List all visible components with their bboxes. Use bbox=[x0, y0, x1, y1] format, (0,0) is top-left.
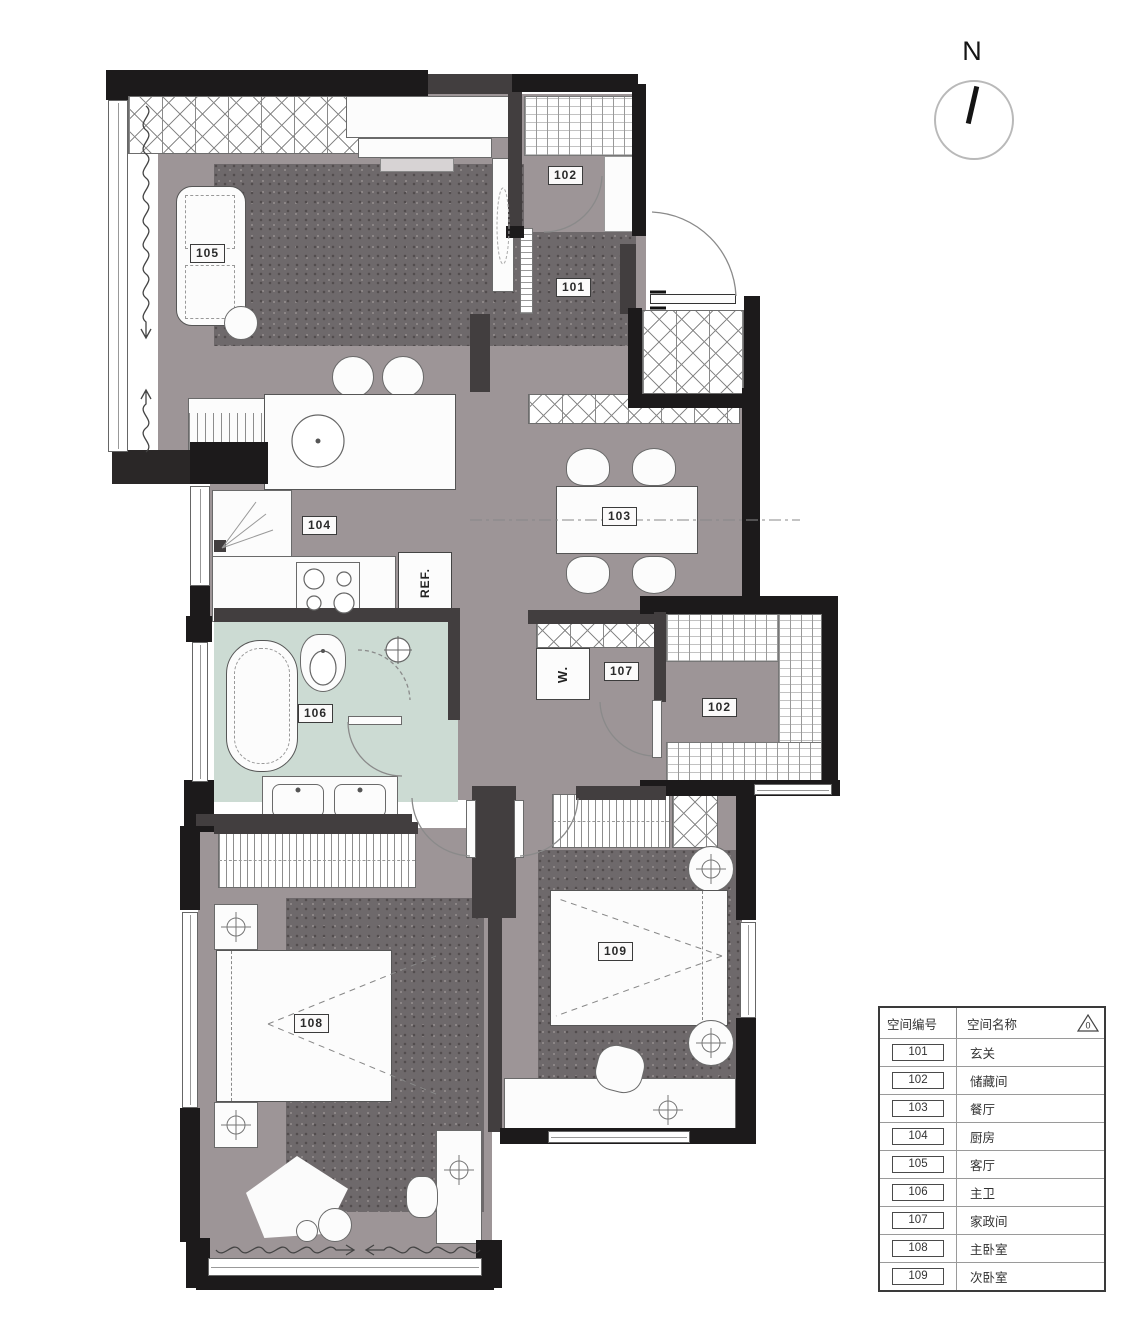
room-tag-closet-top: 102 bbox=[548, 166, 583, 185]
wall bbox=[508, 92, 522, 234]
wall bbox=[736, 1018, 756, 1144]
legend-col-code: 空间编号 bbox=[880, 1014, 956, 1033]
nightstand bbox=[688, 1020, 734, 1066]
second-bed bbox=[550, 890, 728, 1026]
wall bbox=[180, 1108, 200, 1242]
legend-header: 空间编号 空间名称 0 bbox=[880, 1008, 1104, 1038]
room-tag-second: 109 bbox=[598, 942, 633, 961]
legend-room-code: 109 bbox=[892, 1268, 944, 1285]
wall bbox=[186, 616, 212, 642]
svg-text:0: 0 bbox=[1085, 1021, 1090, 1031]
room-tag-utility: 107 bbox=[604, 662, 639, 681]
room-tag-bath: 106 bbox=[298, 704, 333, 723]
legend-row: 108 主卧室 bbox=[880, 1234, 1104, 1262]
wall bbox=[488, 918, 502, 1132]
wall bbox=[506, 226, 524, 238]
refrigerator-label: REF. bbox=[418, 568, 432, 598]
dining-chair bbox=[566, 448, 610, 486]
wall bbox=[196, 1276, 494, 1290]
plant bbox=[296, 1220, 318, 1242]
legend-row: 104 厨房 bbox=[880, 1122, 1104, 1150]
shoe-cabinet bbox=[520, 228, 533, 314]
master-window-bottom bbox=[208, 1258, 482, 1276]
kitchen-island bbox=[264, 394, 456, 490]
room-tag-master: 108 bbox=[294, 1014, 329, 1033]
wall bbox=[472, 786, 516, 918]
bedroom-door-leaf bbox=[514, 800, 524, 858]
toilet bbox=[300, 634, 346, 692]
tv-console-shelf bbox=[358, 138, 492, 158]
living-curtain bbox=[141, 390, 151, 452]
dining-chair bbox=[566, 556, 610, 594]
wall bbox=[628, 308, 642, 406]
room-tag-kitchen: 104 bbox=[302, 516, 337, 535]
nightstand bbox=[214, 1102, 258, 1148]
tv-console bbox=[346, 96, 510, 138]
master-wardrobe bbox=[218, 832, 416, 888]
legend-row: 106 主卫 bbox=[880, 1178, 1104, 1206]
nightstand bbox=[688, 846, 734, 892]
pouf bbox=[224, 306, 258, 340]
legend-room-name: 储藏间 bbox=[970, 1071, 1008, 1090]
pouf bbox=[332, 356, 374, 398]
wall bbox=[736, 788, 756, 920]
storage-door-leaf bbox=[652, 700, 662, 758]
legend-room-name: 厨房 bbox=[970, 1127, 995, 1146]
wall bbox=[180, 826, 200, 910]
storage-window bbox=[754, 784, 832, 795]
room-tag-storage: 102 bbox=[702, 698, 737, 717]
utility-cabinet bbox=[536, 620, 662, 648]
revision-triangle-icon: 0 bbox=[1077, 1013, 1099, 1033]
storage-shelf-bottom bbox=[666, 742, 822, 782]
tv-console-base bbox=[380, 158, 454, 172]
entry-closet-side bbox=[604, 156, 634, 232]
bedroom-door-leaf bbox=[466, 800, 476, 858]
legend-room-code: 104 bbox=[892, 1128, 944, 1145]
room-tag-entry: 101 bbox=[556, 278, 591, 297]
side-table bbox=[318, 1208, 352, 1242]
wall bbox=[196, 814, 412, 826]
vanity-sink bbox=[334, 784, 386, 818]
legend-room-code: 106 bbox=[892, 1184, 944, 1201]
legend-room-code: 105 bbox=[892, 1156, 944, 1173]
north-compass: N bbox=[928, 36, 1016, 166]
legend-room-name: 主卫 bbox=[970, 1183, 995, 1202]
wall bbox=[112, 450, 192, 484]
wall bbox=[620, 244, 636, 314]
entry-door-leaf bbox=[650, 294, 736, 304]
room-tag-dining: 103 bbox=[602, 507, 637, 526]
elevator-shaft bbox=[642, 310, 744, 394]
legend-room-name: 客厅 bbox=[970, 1155, 995, 1174]
second-wardrobe bbox=[552, 794, 670, 848]
legend-room-name: 家政间 bbox=[970, 1211, 1008, 1230]
entry-closet-shelves bbox=[524, 96, 634, 156]
dining-chair bbox=[632, 448, 676, 486]
legend-row: 105 客厅 bbox=[880, 1150, 1104, 1178]
wall bbox=[214, 608, 460, 622]
bathroom-window bbox=[192, 642, 208, 782]
legend-row: 103 餐厅 bbox=[880, 1094, 1104, 1122]
wall bbox=[116, 70, 428, 96]
washer-label: W. bbox=[555, 665, 570, 682]
legend-room-name: 玄关 bbox=[970, 1043, 995, 1062]
nightstand bbox=[214, 904, 258, 950]
legend-row: 101 玄关 bbox=[880, 1038, 1104, 1066]
legend-col-name: 空间名称 0 bbox=[956, 1008, 1104, 1038]
legend-row: 102 储藏间 bbox=[880, 1066, 1104, 1094]
living-window bbox=[108, 100, 128, 452]
bathtub bbox=[226, 640, 298, 772]
floor-plan-sheet: REF. W. 105 102 101 103 104 106 107 1 bbox=[0, 0, 1144, 1336]
wall bbox=[448, 622, 460, 720]
room-tag-living: 105 bbox=[190, 244, 225, 263]
legend-room-code: 108 bbox=[892, 1240, 944, 1257]
legend-row: 107 家政间 bbox=[880, 1206, 1104, 1234]
north-label: N bbox=[928, 36, 1016, 67]
second-window-right bbox=[740, 922, 756, 1018]
wall bbox=[654, 612, 666, 702]
second-wardrobe-end bbox=[672, 794, 718, 848]
wall bbox=[512, 74, 638, 92]
wall bbox=[576, 786, 666, 800]
fan-base bbox=[214, 540, 226, 552]
legend-room-code: 103 bbox=[892, 1100, 944, 1117]
master-window-left bbox=[182, 912, 198, 1108]
wall bbox=[428, 74, 512, 94]
wall bbox=[742, 388, 760, 602]
kitchen-window bbox=[190, 486, 210, 586]
legend-room-code: 107 bbox=[892, 1212, 944, 1229]
bathroom-door-leaf bbox=[348, 716, 402, 725]
legend-room-name: 主卧室 bbox=[970, 1239, 1008, 1258]
pouf bbox=[382, 356, 424, 398]
legend-room-name: 餐厅 bbox=[970, 1099, 995, 1118]
legend-room-code: 101 bbox=[892, 1044, 944, 1061]
entry-door-arc bbox=[652, 212, 736, 296]
master-desk bbox=[436, 1130, 482, 1244]
wall bbox=[640, 596, 836, 614]
refrigerator: REF. bbox=[398, 552, 452, 614]
legend-room-code: 102 bbox=[892, 1072, 944, 1089]
vanity-sink bbox=[272, 784, 324, 818]
second-window-bottom bbox=[548, 1131, 690, 1143]
legend-table: 空间编号 空间名称 0 101 玄关 102 储藏间 103 餐厅 bbox=[878, 1006, 1106, 1292]
washing-machine: W. bbox=[536, 648, 590, 700]
wall bbox=[632, 84, 646, 236]
wall bbox=[106, 70, 128, 100]
wall bbox=[822, 596, 838, 796]
legend-room-name: 次卧室 bbox=[970, 1267, 1008, 1286]
legend-row: 109 次卧室 bbox=[880, 1262, 1104, 1290]
dining-chair bbox=[632, 556, 676, 594]
wall bbox=[628, 394, 758, 408]
desk-chair bbox=[406, 1176, 438, 1218]
wall bbox=[470, 314, 490, 392]
wall bbox=[190, 442, 268, 484]
